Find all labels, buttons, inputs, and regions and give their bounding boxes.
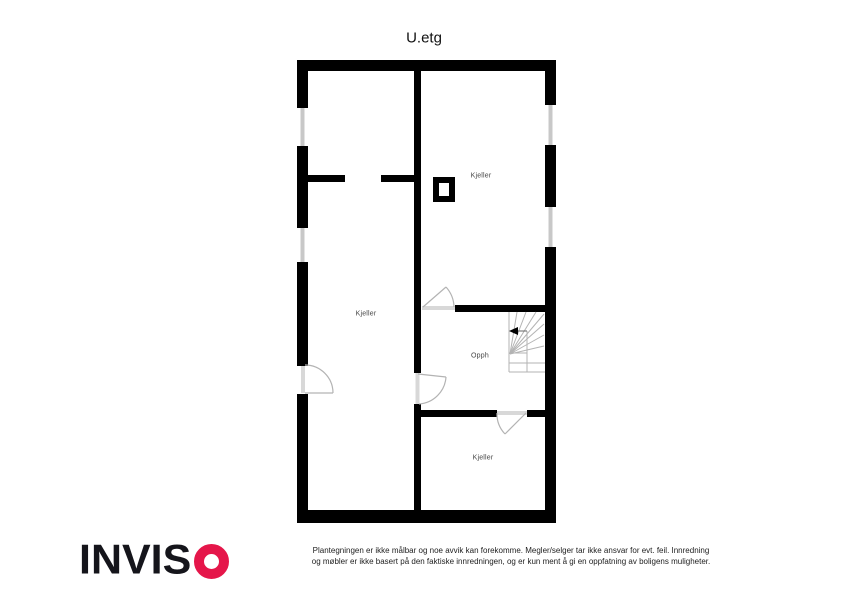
top-wall bbox=[297, 60, 556, 71]
room-label-kjeller-left: Kjeller bbox=[356, 311, 377, 318]
bottom-kjeller-wall-left bbox=[421, 410, 497, 417]
stairs-direction-arrow-icon bbox=[509, 327, 527, 335]
window-right-1 bbox=[549, 105, 553, 145]
door-bottom-kjeller bbox=[497, 411, 527, 434]
right-wall-segment bbox=[545, 145, 556, 207]
windows bbox=[301, 105, 553, 262]
floorplan-page: U.etg bbox=[0, 0, 849, 600]
inviso-logo: INVIS bbox=[79, 540, 229, 580]
door-center-wall bbox=[416, 373, 447, 404]
exterior-walls bbox=[297, 60, 556, 523]
bottom-wall bbox=[297, 510, 556, 523]
chimney bbox=[436, 180, 452, 199]
right-wall-segment bbox=[545, 247, 556, 510]
partial-wall-right bbox=[381, 175, 421, 182]
room-label-opph: Opph bbox=[471, 353, 489, 360]
left-wall-segment bbox=[297, 394, 308, 510]
stairs bbox=[509, 312, 545, 372]
inviso-logo-o-icon bbox=[194, 544, 229, 579]
window-left-2 bbox=[301, 228, 305, 262]
left-wall-segment bbox=[297, 262, 308, 366]
center-wall-upper bbox=[414, 71, 421, 373]
room-label-kjeller-top: Kjeller bbox=[471, 173, 492, 180]
disclaimer-text: Plantegningen er ikke målbar og noe avvi… bbox=[295, 545, 727, 567]
left-wall-segment bbox=[297, 146, 308, 228]
window-right-2 bbox=[549, 207, 553, 247]
bottom-kjeller-wall-right bbox=[527, 410, 545, 417]
floor-plan-drawing bbox=[0, 0, 849, 600]
room-label-kjeller-bottom: Kjeller bbox=[473, 455, 494, 462]
door-opph-top bbox=[422, 287, 455, 310]
window-left-1 bbox=[301, 108, 305, 146]
disclaimer-line-2: og møbler er ikke basert på den faktiske… bbox=[295, 556, 727, 567]
disclaimer-line-1: Plantegningen er ikke målbar og noe avvi… bbox=[295, 545, 727, 556]
inviso-logo-text: INVIS bbox=[79, 541, 191, 579]
right-wall-segment bbox=[545, 71, 556, 105]
center-wall-lower bbox=[414, 404, 421, 510]
partial-wall-left bbox=[297, 175, 345, 182]
left-wall-segment bbox=[297, 71, 308, 108]
door-exterior-left bbox=[301, 365, 333, 393]
interior-walls bbox=[297, 71, 545, 510]
opph-top-wall bbox=[455, 305, 545, 312]
